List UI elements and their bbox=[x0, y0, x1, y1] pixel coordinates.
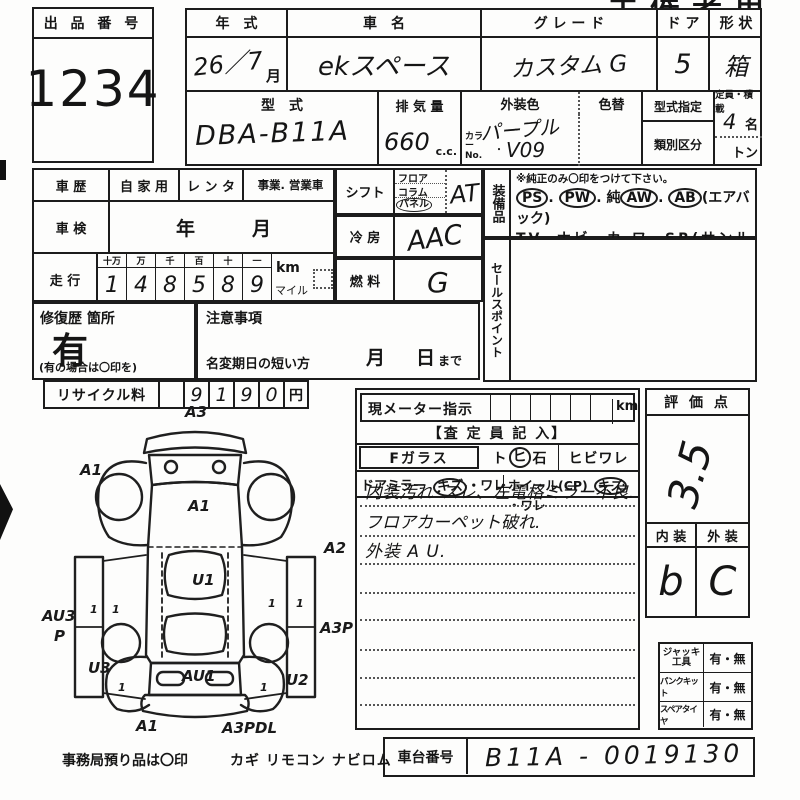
damage-label-a3pdl-rear: A3PDL bbox=[222, 719, 277, 737]
displacement-cell: 排 気 量 660 c.c. bbox=[379, 90, 462, 164]
assessor-header: 【査 定 員 記 入】 bbox=[357, 422, 638, 445]
door-value-cell: 5 bbox=[658, 38, 710, 90]
mileage-digit: 8 bbox=[156, 268, 184, 302]
shift-option-panel: パネル bbox=[395, 198, 445, 213]
equipment-aw: AW bbox=[620, 188, 658, 208]
mileage-digit-cell: 千 8 bbox=[156, 254, 185, 304]
rename-deadline-label: 名変期日の短い方 bbox=[206, 353, 310, 372]
damage-label-au3-left-rear: AU3 bbox=[42, 607, 76, 625]
meter-cell bbox=[590, 395, 610, 420]
sales-point-label: セールスポイント bbox=[485, 240, 511, 380]
color-no-label: カラーNo. bbox=[465, 133, 491, 161]
accessory-value: 有・無 bbox=[704, 644, 751, 672]
damage-label-au1-rear: AU1 bbox=[182, 667, 216, 685]
interior-label: 内 装 bbox=[647, 524, 697, 546]
assessor-note: 内装汚れ･スレ、左電格ミラー不良. bbox=[365, 478, 634, 503]
capacity-ton-row: トン bbox=[715, 138, 762, 162]
shape-header: 形 状 bbox=[710, 10, 762, 38]
mileage-digit: 9 bbox=[243, 268, 271, 302]
history-private-option: 自 家 用 bbox=[110, 170, 180, 202]
fglass-row: Fガラス トヒ石 ヒビワレ bbox=[357, 445, 638, 472]
capacity-cell: 定員・積載 4 名 トン bbox=[715, 90, 762, 164]
inspection-value: 年 月 bbox=[110, 202, 337, 254]
caution-label: 注意事項 bbox=[198, 304, 478, 328]
mileage-check-box bbox=[313, 269, 333, 289]
interior-value: b bbox=[647, 548, 697, 616]
history-business-option: 事業. 営業車 bbox=[244, 170, 337, 202]
shape-value: 箱 bbox=[724, 47, 748, 82]
equipment-aw-prefix: 純 bbox=[606, 190, 620, 206]
mileage-digit-header: 十万 bbox=[98, 254, 126, 268]
model-value: DBA-B11A bbox=[187, 115, 378, 153]
assessor-note: フロアカーペット破れ. bbox=[365, 508, 540, 533]
sales-point-box: セールスポイント bbox=[483, 238, 757, 382]
mileage-digit-header: 千 bbox=[156, 254, 184, 268]
mileage-digit-cell: 十 8 bbox=[214, 254, 243, 304]
history-label: 車 歴 bbox=[34, 170, 110, 202]
caution-box: 注意事項 名変期日の短い方 月 日 まで bbox=[196, 302, 480, 380]
rename-made: まで bbox=[438, 352, 462, 369]
grade-header: グ レ ー ド bbox=[482, 10, 658, 38]
equipment-note: ※純正のみ〇印をつけて下さい。 bbox=[516, 171, 755, 186]
grade-value-cell: カスタム G bbox=[482, 38, 658, 90]
exterior-color-header: 外装色 bbox=[462, 92, 578, 114]
auction-number-label: 出 品 番 号 bbox=[34, 9, 152, 39]
mileage-digit: 1 bbox=[98, 268, 126, 302]
mileage-digit-header: 一 bbox=[243, 254, 271, 268]
meter-unit: km bbox=[612, 399, 638, 424]
evaluation-label: 評 価 点 bbox=[647, 390, 748, 416]
damage-tick: 1 bbox=[118, 681, 126, 694]
ruled-line bbox=[360, 649, 635, 651]
mileage-digit: 4 bbox=[127, 268, 155, 302]
ruled-line bbox=[360, 592, 635, 594]
equipment-ps: PS bbox=[516, 188, 548, 208]
damage-tick: 1 bbox=[260, 681, 268, 694]
damage-label-a1-rear-bumper: A1 bbox=[136, 717, 158, 735]
mileage-digit-cell: 十万 1 bbox=[98, 254, 127, 304]
month-suffix: 月 bbox=[266, 65, 281, 86]
auction-sheet: 主催者用 出 品 番 号 1234 年 式 車 名 グ レ ー ド ド ア 形 … bbox=[0, 0, 800, 800]
accessory-label: スペアタイヤ bbox=[660, 702, 704, 727]
mileage-unit-cell: km マイル bbox=[272, 254, 337, 304]
mileage-digit-cell: 一 9 bbox=[243, 254, 272, 304]
mileage-digit: 5 bbox=[185, 268, 213, 302]
ac-box: 冷 房 AAC bbox=[335, 215, 483, 258]
mileage-digit-cell: 万 4 bbox=[127, 254, 156, 304]
ruled-line bbox=[360, 704, 635, 706]
displacement-header: 排 気 量 bbox=[379, 92, 460, 118]
exterior-value: C bbox=[697, 548, 748, 616]
meter-label: 現メーター指示 bbox=[368, 399, 473, 419]
accessory-row: スペアタイヤ 有・無 bbox=[660, 702, 751, 727]
damage-tick: 1 bbox=[90, 603, 98, 616]
fglass-label-cell: Fガラス bbox=[359, 446, 479, 469]
scan-artifact bbox=[0, 484, 13, 540]
grade-value: カスタム G bbox=[510, 44, 629, 84]
ac-value: AAC bbox=[405, 219, 465, 257]
fuel-value: G bbox=[427, 266, 449, 299]
year-header: 年 式 bbox=[187, 10, 288, 38]
assessor-note: 外装 A U. bbox=[365, 537, 446, 562]
model-header: 型 式 bbox=[187, 92, 377, 118]
displacement-value: 660 bbox=[384, 128, 430, 156]
inspection-label: 車 検 bbox=[34, 202, 110, 254]
car-name-value-cell: ekスペース bbox=[288, 38, 482, 90]
color-no-dot: ・ bbox=[494, 141, 504, 156]
damage-label-a2-right: A2 bbox=[324, 539, 346, 557]
shift-option-column: コラム bbox=[395, 184, 445, 198]
ac-label: 冷 房 bbox=[337, 217, 395, 256]
exterior-label: 外 装 bbox=[697, 524, 748, 546]
capacity-persons-row: 4 名 bbox=[715, 110, 762, 138]
color-change-cell bbox=[578, 114, 643, 166]
type-designation-label: 型式指定 bbox=[643, 92, 713, 120]
mileage-digit-header: 万 bbox=[127, 254, 155, 268]
fglass-crack-cell: ヒビワレ bbox=[559, 445, 638, 470]
capacity-value: 4 bbox=[723, 110, 736, 134]
mileage-unit-km: km bbox=[276, 260, 300, 276]
displacement-unit: c.c. bbox=[436, 145, 457, 158]
equipment-pw: PW bbox=[559, 188, 597, 208]
type-designation-cell: 型式指定 類別区分 bbox=[643, 90, 715, 164]
damage-label-u2-right: U2 bbox=[286, 671, 309, 689]
equipment-content: ※純正のみ〇印をつけて下さい。 PS. PW. 純AW. AB(エアバック) T… bbox=[511, 170, 755, 236]
evaluation-box: 評 価 点 3.5 内 装 外 装 b C bbox=[645, 388, 750, 618]
ruled-line bbox=[360, 535, 635, 537]
car-name-value: ekスペース bbox=[318, 46, 450, 83]
damage-label-a1-left-front: A1 bbox=[80, 461, 102, 479]
equipment-box: 装備品 ※純正のみ〇印をつけて下さい。 PS. PW. 純AW. AB(エアバッ… bbox=[483, 168, 757, 238]
class-category-label: 類別区分 bbox=[643, 120, 713, 166]
capacity-unit: 名 bbox=[745, 114, 758, 133]
assessor-box: 現メーター指示 km 【査 定 員 記 入】 Fガラス トヒ石 ヒビワレ ドアミ… bbox=[355, 388, 640, 730]
damage-tick: 1 bbox=[112, 603, 120, 616]
chassis-number-value: B11A - 0019130 bbox=[485, 739, 744, 773]
exterior-color-cell: 外装色 色替 パープル カラーNo. ・ V09 bbox=[462, 90, 643, 164]
color-no-value: V09 bbox=[506, 138, 545, 162]
meter-cell bbox=[510, 395, 530, 420]
ton-unit: トン bbox=[732, 146, 758, 161]
vehicle-info-table: 年 式 車 名 グ レ ー ド ド ア 形 状 26／7 月 ekスペース カス… bbox=[185, 8, 762, 166]
mileage-digit: 8 bbox=[214, 268, 242, 302]
meter-cell bbox=[490, 395, 510, 420]
equipment-label: 装備品 bbox=[485, 170, 511, 236]
scan-artifact bbox=[0, 160, 6, 180]
shift-options: フロア コラム パネル bbox=[395, 170, 447, 213]
office-note-items: カギ リモコン ナビロム bbox=[230, 750, 392, 770]
damage-tick: 1 bbox=[296, 597, 304, 610]
ruled-line bbox=[360, 505, 635, 507]
fuel-label: 燃 料 bbox=[337, 260, 395, 300]
meter-row: 現メーター指示 km bbox=[360, 393, 635, 422]
meter-cell bbox=[570, 395, 590, 420]
accessory-row: ジャッキ工具 有・無 bbox=[660, 644, 751, 673]
year-value: 26／7 bbox=[191, 40, 264, 82]
chassis-number-box: 車台番号 B11A - 0019130 bbox=[383, 737, 755, 777]
ruled-line bbox=[360, 677, 635, 679]
repair-history-note: (有の場合は〇印を) bbox=[39, 359, 137, 375]
damage-label-a1-hood: A1 bbox=[188, 497, 210, 515]
history-table: 車 歴 自 家 用 レ ン タ 事業. 営業車 車 検 年 月 走 行 十万 1… bbox=[32, 168, 335, 302]
repair-history-box: 修復歴 箇所 有 (有の場合は〇印を) bbox=[32, 302, 196, 380]
damage-label-u3-left: U3 bbox=[88, 659, 111, 677]
accessory-value: 有・無 bbox=[704, 673, 751, 701]
door-header: ド ア bbox=[658, 10, 710, 38]
shift-option-floor: フロア bbox=[395, 170, 445, 184]
accessory-row: パンクキット 有・無 bbox=[660, 673, 751, 702]
accessory-label: ジャッキ工具 bbox=[660, 644, 704, 672]
meter-cell bbox=[550, 395, 570, 420]
damage-tick: 1 bbox=[268, 597, 276, 610]
ruled-line bbox=[360, 563, 635, 565]
damage-label-u1-roof: U1 bbox=[192, 571, 215, 589]
shift-label: シフト bbox=[337, 170, 395, 213]
auction-number-value: 1234 bbox=[34, 39, 152, 139]
year-value-cell: 26／7 月 bbox=[187, 38, 288, 90]
rename-month: 月 bbox=[366, 343, 385, 370]
fglass-stone-cell: トヒ石 bbox=[481, 445, 559, 470]
shift-box: シフト フロア コラム パネル AT bbox=[335, 168, 483, 215]
interior-exterior-header: 内 装 外 装 bbox=[647, 522, 748, 548]
mileage-label: 走 行 bbox=[34, 254, 98, 304]
damage-label-a3-front: A3 bbox=[185, 403, 207, 421]
accessory-label: パンクキット bbox=[660, 673, 704, 701]
car-name-header: 車 名 bbox=[288, 10, 482, 38]
ruled-line bbox=[360, 619, 635, 621]
model-cell: 型 式 DBA-B11A bbox=[187, 90, 379, 164]
meter-cell bbox=[530, 395, 550, 420]
equipment-ab: AB bbox=[668, 188, 702, 208]
chassis-number-label: 車台番号 bbox=[385, 739, 468, 774]
shift-value: AT bbox=[449, 179, 481, 210]
rename-day: 日 bbox=[416, 343, 435, 370]
auction-number-box: 出 品 番 号 1234 bbox=[32, 7, 154, 163]
mileage-digit-cell: 百 5 bbox=[185, 254, 214, 304]
capacity-header: 定員・積載 bbox=[715, 92, 762, 110]
door-value: 5 bbox=[674, 49, 691, 80]
history-rental-option: レ ン タ bbox=[180, 170, 244, 202]
damage-label-a3p-right-rear: A3P bbox=[320, 619, 353, 637]
equipment-line1: PS. PW. 純AW. AB(エアバック) bbox=[516, 187, 755, 228]
evaluation-score: 3.5 bbox=[657, 434, 743, 520]
office-note-text: 事務局預り品は〇印 bbox=[62, 750, 188, 770]
shape-value-cell: 箱 bbox=[710, 38, 762, 90]
accessory-value: 有・無 bbox=[704, 702, 751, 727]
accessories-box: ジャッキ工具 有・無 パンクキット 有・無 スペアタイヤ 有・無 bbox=[658, 642, 753, 730]
fglass-hi-circled: ヒ bbox=[509, 447, 531, 467]
fuel-box: 燃 料 G bbox=[335, 258, 483, 302]
color-change-header: 色替 bbox=[578, 92, 643, 114]
mileage-unit-mile: マイル bbox=[275, 282, 308, 298]
car-damage-diagram: A3 A1 A1 A2 U1 AU3 P A3P U3 U2 AU1 A1 A3… bbox=[40, 405, 350, 745]
mileage-digit-header: 十 bbox=[214, 254, 242, 268]
mileage-digit-header: 百 bbox=[185, 254, 213, 268]
damage-label-p-left-rear: P bbox=[54, 627, 65, 645]
